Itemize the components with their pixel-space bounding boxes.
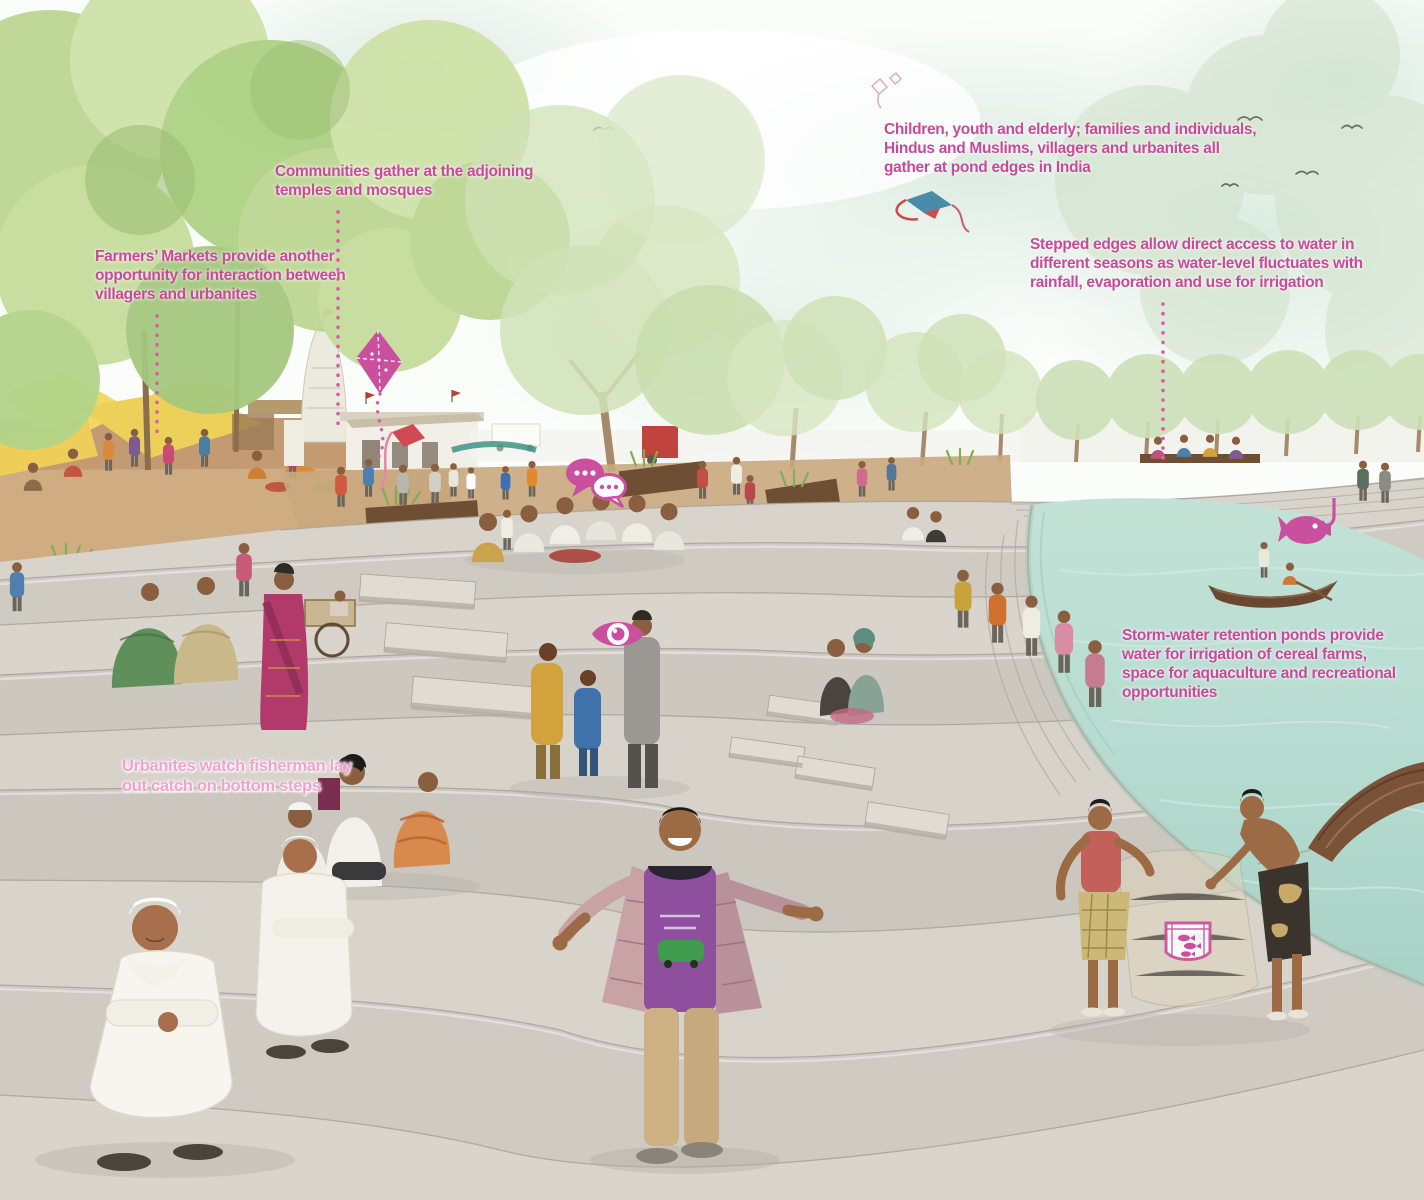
fish-hook-icon: [1276, 496, 1342, 556]
fish-net-icon: [1162, 916, 1214, 968]
kite-icon: [350, 328, 406, 478]
chat-bubbles-icon: [564, 456, 630, 510]
annotation-communities: Communities gather at the adjoining temp…: [275, 163, 533, 201]
annotation-urbanites: Urbanites watch fisherman lay out catch …: [122, 756, 352, 796]
render-canvas: Farmers’ Markets provide another opportu…: [0, 0, 1424, 1200]
annotation-farmers-markets: Farmers’ Markets provide another opportu…: [95, 248, 345, 305]
annotation-pond-gathering: Children, youth and elderly; families an…: [884, 121, 1256, 178]
eye-icon: [590, 612, 646, 656]
annotation-storm-water: Storm-water retention ponds provide wate…: [1122, 627, 1396, 703]
annotation-stepped-edges: Stepped edges allow direct access to wat…: [1030, 236, 1363, 293]
scene-illustration: [0, 0, 1424, 1200]
